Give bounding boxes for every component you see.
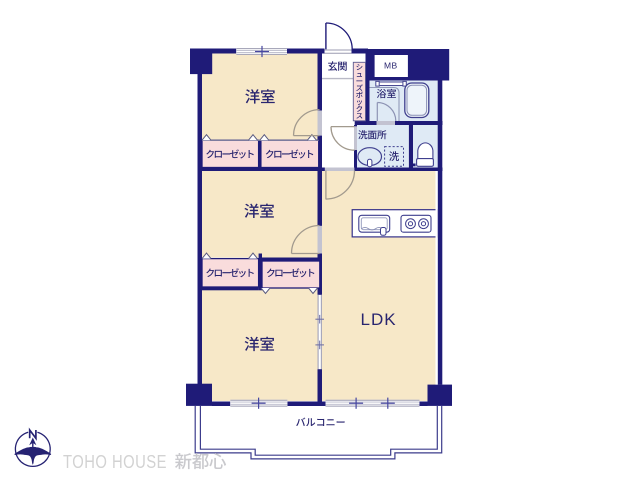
svg-text:MB: MB [384,61,398,71]
svg-text:LDK: LDK [361,310,397,329]
svg-text:TOHO HOUSE: TOHO HOUSE [63,451,167,472]
